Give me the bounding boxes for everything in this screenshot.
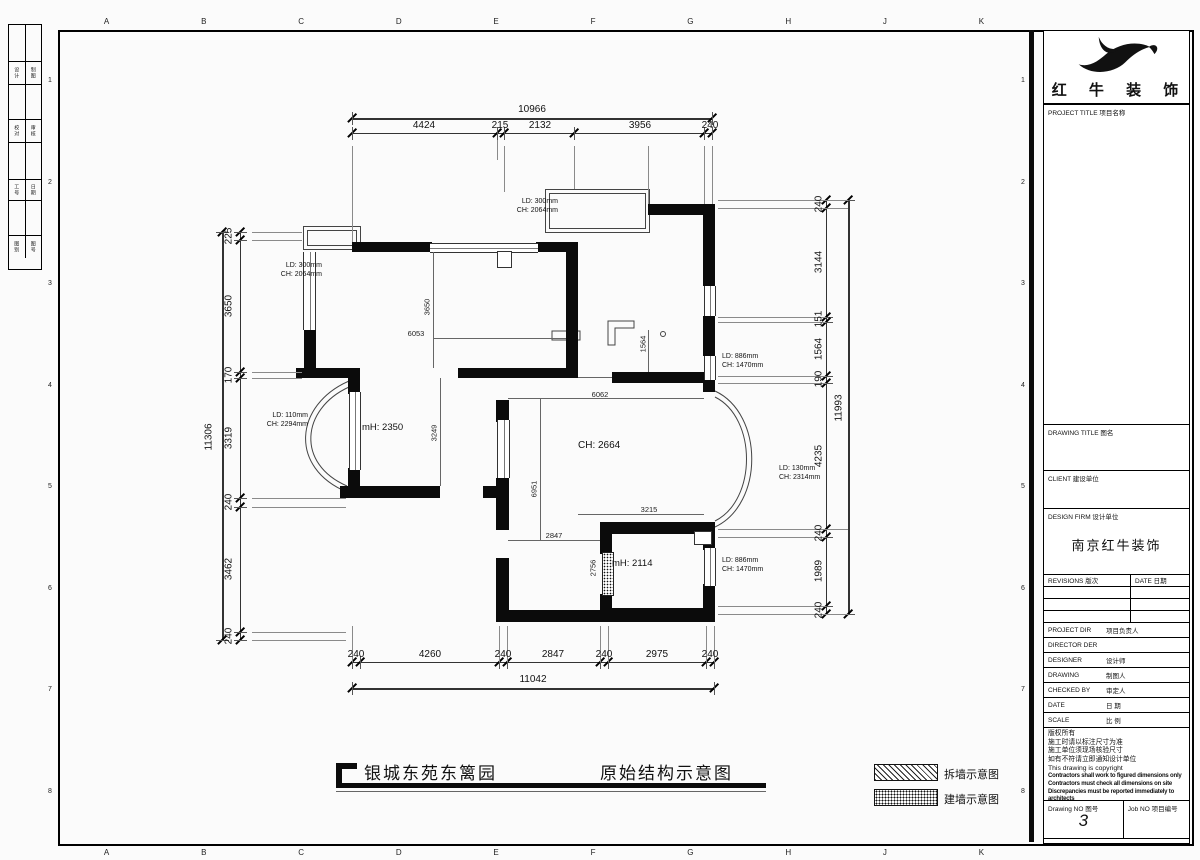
revisions-date-header: DATE 日期	[1131, 575, 1189, 587]
project-dir-row: PROJECT DIR项目负责人	[1044, 623, 1189, 638]
extension-line	[497, 140, 498, 160]
legend-swatch-demolish	[874, 764, 938, 781]
dim-label: 3319	[224, 427, 235, 449]
extension-line	[712, 146, 713, 204]
scale-row: SCALE比 例	[1044, 713, 1189, 728]
legend-swatch-build	[874, 789, 938, 806]
note-line: 施工单位须现场核验尺寸	[1048, 747, 1189, 756]
grid-number: 5	[1021, 483, 1025, 490]
red-bull-logo-icon	[1069, 35, 1165, 77]
revisions-table: REVISIONS 版次 DATE 日期	[1044, 575, 1189, 623]
extension-line	[718, 376, 826, 377]
dim-label: 4260	[419, 649, 441, 660]
dim-total: 11306	[204, 423, 215, 450]
extension-line	[252, 232, 302, 233]
design-firm-cell: DESIGN FIRM 设计单位 南京红牛装饰	[1044, 509, 1189, 575]
title-block-divider	[1029, 30, 1034, 842]
drawing-no-value: 3	[1044, 811, 1123, 831]
extension-line	[718, 383, 826, 384]
extension-line	[718, 200, 848, 201]
client-label: CLIENT 建设单位	[1044, 471, 1189, 483]
note-line: 如有不符请立即通知设计单位	[1048, 756, 1189, 765]
dim-label: 240	[596, 649, 613, 660]
drawing-sheet: { "sheet": { "grid_letters": ["A","B","C…	[0, 0, 1200, 860]
brand-name: 红 牛 装 饰	[1052, 79, 1188, 100]
project-title-label: PROJECT TITLE 项目名称	[1044, 105, 1189, 117]
project-name-title: 银城东苑东篱园	[364, 759, 497, 784]
dim-label: 3650	[224, 295, 235, 317]
extension-line	[352, 146, 353, 242]
title-block: 红 牛 装 饰 PROJECT TITLE 项目名称 DRAWING TITLE…	[1043, 30, 1190, 844]
dim-label: 3462	[224, 558, 235, 580]
note-line: This drawing is copyright	[1048, 765, 1189, 774]
title-corner-mark	[336, 763, 357, 769]
extension-line	[718, 614, 848, 615]
grid-number: 1	[1021, 77, 1025, 84]
date-row: DATE日 期	[1044, 698, 1189, 713]
drawing-name-title: 原始结构示意图	[600, 759, 733, 784]
extension-line	[718, 606, 826, 607]
dim-label: 2975	[646, 649, 668, 660]
dim-label: 1564	[814, 338, 825, 360]
drawing-title-cell: DRAWING TITLE 图名	[1044, 425, 1189, 471]
dim-label: 240	[348, 649, 365, 660]
title-underline-thick	[336, 783, 766, 788]
dim-label: 1989	[814, 560, 825, 582]
dim-total: 11042	[519, 674, 546, 685]
revisions-empty-row	[1044, 599, 1131, 611]
extension-line	[718, 208, 848, 209]
dim-label: 170	[224, 367, 235, 384]
copyright-notes: 版权所有施工时请以标注尺寸为准施工单位须现场核验尺寸如有不符请立即通知设计单位T…	[1044, 728, 1189, 801]
revisions-header: REVISIONS 版次	[1044, 575, 1131, 587]
dim-total: 10966	[518, 104, 546, 115]
dim-label: 240	[702, 120, 719, 131]
grid-number: 8	[1021, 788, 1025, 795]
dim-label: 3956	[629, 120, 651, 131]
grid-number: 7	[1021, 686, 1025, 693]
dim-line	[240, 232, 241, 640]
revisions-empty-row	[1044, 587, 1131, 599]
revisions-empty-row	[1131, 599, 1189, 611]
legend-label-demolish: 拆墙示意图	[944, 766, 999, 782]
extension-line	[252, 498, 346, 499]
extension-line	[648, 146, 649, 204]
note-line-bold: Contractors must check all dimensions on…	[1048, 781, 1189, 789]
extension-line	[718, 529, 848, 530]
dim-label: 240	[814, 525, 825, 542]
grid-number: 4	[1021, 382, 1025, 389]
revisions-empty-row	[1131, 611, 1189, 623]
extension-line	[252, 240, 302, 241]
drawing-title-label: DRAWING TITLE 图名	[1044, 425, 1189, 437]
dim-line	[826, 200, 827, 614]
dim-label: 2847	[542, 649, 564, 660]
dim-line	[352, 688, 714, 690]
dim-label: 240	[224, 628, 235, 645]
dim-label: 240	[814, 196, 825, 213]
grid-number: 2	[1021, 179, 1025, 186]
design-firm-label: DESIGN FIRM 设计单位	[1044, 509, 1189, 521]
extension-line	[252, 378, 302, 379]
dim-label: 240	[224, 494, 235, 511]
design-firm-value: 南京红牛装饰	[1044, 535, 1189, 554]
dim-line	[352, 662, 714, 663]
dim-line	[848, 200, 850, 614]
dim-total: 11993	[834, 394, 845, 421]
extension-line	[718, 537, 826, 538]
note-line: 版权所有	[1048, 730, 1189, 739]
dim-label: 2132	[529, 120, 551, 131]
dim-label: 4424	[413, 120, 435, 131]
extension-line	[252, 640, 346, 641]
dim-label: 4235	[814, 445, 825, 467]
grid-number: 6	[1021, 585, 1025, 592]
job-no-label: Job NO 项目编号	[1124, 801, 1189, 813]
checked-by-row: CHECKED BY审定人	[1044, 683, 1189, 698]
dim-label: 215	[492, 120, 509, 131]
drawing-number-row: Drawing NO 图号 3 Job NO 项目编号	[1044, 801, 1189, 839]
designer-row: DESIGNER设计师	[1044, 653, 1189, 668]
revisions-empty-row	[1131, 587, 1189, 599]
director-row: DIRECTOR DER	[1044, 638, 1189, 653]
extension-line	[252, 632, 346, 633]
dim-line	[352, 133, 712, 134]
legend-label-build: 建墙示意图	[944, 791, 999, 807]
dim-label: 240	[814, 602, 825, 619]
grid-number: 3	[1021, 280, 1025, 287]
dim-label: 190	[814, 371, 825, 388]
drawing-row: DRAWING制图人	[1044, 668, 1189, 683]
title-block-filler	[1044, 839, 1189, 845]
extension-line	[252, 372, 302, 373]
dim-label: 151	[814, 311, 825, 328]
dimension-layer: 10966 4424 215 2132 3956 240 240 4260 24…	[0, 0, 1020, 860]
note-line-bold: Contractors shall work to figured dimens…	[1048, 773, 1189, 781]
revisions-empty-row	[1044, 611, 1131, 623]
extension-line	[704, 146, 705, 204]
dim-label: 240	[702, 649, 719, 660]
extension-line	[252, 507, 346, 508]
extension-line	[718, 322, 826, 323]
client-cell: CLIENT 建设单位	[1044, 471, 1189, 509]
extension-line	[718, 317, 826, 318]
dim-label: 3144	[814, 251, 825, 273]
dim-label: 225	[224, 228, 235, 245]
extension-line	[504, 146, 505, 192]
project-title-cell: PROJECT TITLE 项目名称	[1044, 105, 1189, 425]
title-underline-thin	[336, 791, 766, 792]
extension-line	[574, 146, 575, 189]
logo-cell: 红 牛 装 饰	[1044, 31, 1189, 105]
dim-label: 240	[495, 649, 512, 660]
